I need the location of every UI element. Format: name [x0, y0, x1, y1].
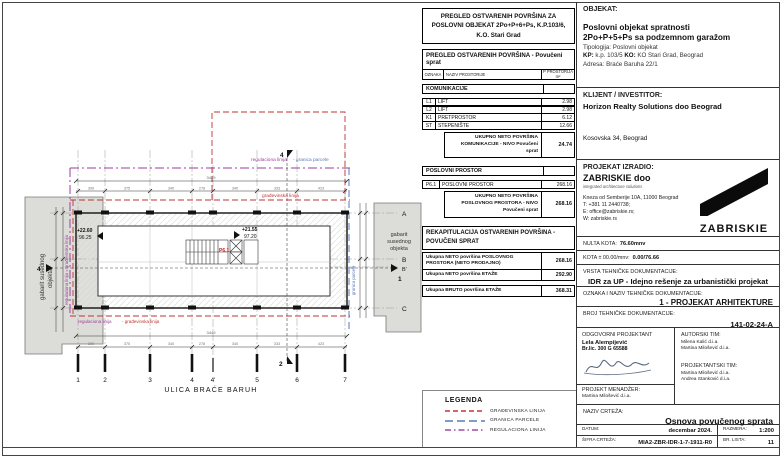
adresa-line: Adresa: Braće Baruha 22/1	[583, 61, 773, 68]
neighbor-right-label: susednog	[387, 239, 411, 245]
svg-text:340: 340	[232, 342, 238, 346]
rekap-row: Ukupna BRUTO površina ETAŽE 368.31	[422, 285, 575, 297]
rekapitulacija-header: REKAPITULACIJA OSTVARENIH POVRŠINA - POV…	[422, 226, 575, 250]
granica-parcele-swatch	[445, 419, 485, 423]
row-code: ST	[422, 121, 436, 130]
svg-text:423: 423	[318, 342, 324, 346]
timovi-column: AUTORSKI TIM: Milena Kalić d.i.a. Martin…	[675, 328, 779, 404]
lista-value: 11	[768, 440, 774, 446]
svg-text:333: 333	[274, 187, 280, 191]
sifra-lista-row: ŠIFRA CRTEŽA: MIA2-ZBR-IDR-1-7-1911-R0 B…	[577, 436, 779, 447]
razmera-value: 1:200	[759, 428, 774, 434]
left-vertical-line-label: regulaciona linija = građevinska linija	[64, 235, 69, 305]
rekap-label: Ukupna NETO površina ETAŽE	[422, 269, 542, 281]
datum-cell: DATUM: decembar 2024.	[577, 425, 717, 435]
svg-text:340: 340	[168, 187, 174, 191]
area-table-title: PREGLED OSTVARENIH POVRŠINA ZA POSLOVNI …	[422, 8, 575, 44]
objekat-title-line2: 2Po+P+5+Ps sa podzemnom garažom	[583, 33, 773, 42]
svg-text:A: A	[402, 211, 407, 218]
table-column-headers: OZNAKA NAZIV PROSTORIJE P PROSTORIJA m²	[422, 70, 575, 80]
gradjevinska-linija-label: građevinska linija	[262, 193, 299, 199]
svg-text:278: 278	[199, 342, 205, 346]
legend-item: GRAĐEVINSKA LINIJA	[445, 409, 576, 414]
objekat-section: OBJEKAT: Poslovni objekat spratnosti 2Po…	[577, 2, 779, 88]
row-name: POSLOVNI PROSTOR	[440, 180, 542, 189]
section-marker-bottom: 2	[279, 356, 293, 368]
neighbor-right-label: gabarit	[391, 232, 408, 238]
svg-text:4: 4	[190, 377, 194, 384]
neighbor-left-label: gabarit susednog	[40, 254, 46, 300]
section-value-cell	[544, 166, 575, 176]
svg-text:333: 333	[274, 342, 280, 346]
section-komunikacije: KOMUNIKACIJE	[422, 84, 575, 94]
drawing-sheet: gabarit susednog objekta gabarit susedno…	[0, 0, 782, 465]
axis-number-labels: 1 2 3 4 4' 5 6 7	[76, 377, 347, 384]
room-tag: P6.1	[219, 248, 230, 254]
regulaciona-linija-swatch	[445, 428, 485, 432]
menadzer-name: Martina Milošević d.i.a.	[582, 394, 669, 399]
oznaka-section: OZNAKA I NAZIV TEHNIČKE DOKUMENTACIJE: 1…	[577, 287, 779, 307]
title-block: OBJEKAT: Poslovni objekat spratnosti 2Po…	[576, 2, 779, 447]
kota-row: KOTA ± 00.00/mnv: 0.00/76.66	[577, 251, 779, 265]
svg-text:+21.55: +21.55	[242, 227, 258, 233]
legend-title: LEGENDA	[445, 397, 576, 404]
svg-text:5: 5	[255, 377, 259, 384]
svg-text:423: 423	[318, 187, 324, 191]
svg-text:97.20: 97.20	[244, 234, 257, 240]
vrsta-value: IDR za UP - Idejno rešenje za urbanistič…	[583, 277, 773, 286]
dim-total-top: 3449	[207, 175, 217, 180]
odgovorni-column: ODGOVORNI PROJEKTANT Lela Alempijević Br…	[577, 328, 675, 404]
dim-total-bottom: 3449	[207, 330, 217, 335]
klijent-name: Horizon Realty Solutions doo Beograd	[583, 102, 773, 111]
neighbor-building-right	[374, 203, 421, 332]
table-row: P6.1 POSLOVNI PROSTOR 268.16	[422, 180, 575, 189]
svg-text:2: 2	[279, 361, 283, 368]
svg-text:340: 340	[232, 187, 238, 191]
section-value-cell	[544, 84, 575, 94]
svg-text:C: C	[402, 306, 407, 313]
axis-ticks	[78, 354, 345, 372]
area-tables: PREGLED OSTVARENIH POVRŠINA ZA POSLOVNI …	[422, 8, 575, 297]
svg-text:340: 340	[168, 342, 174, 346]
svg-text:4: 4	[37, 266, 41, 273]
kp-ko-line: KP: k.p. 103/5 KO: KO Stari Grad, Beogra…	[583, 52, 773, 59]
signature	[582, 355, 654, 377]
section-label: POSLOVNI PROSTOR	[422, 166, 544, 176]
rekap-value: 368.31	[542, 285, 575, 297]
razmera-cell: RAZMERA: 1:200	[717, 425, 779, 435]
svg-text:+22.60: +22.60	[77, 228, 93, 234]
rekap-value: 268.16	[542, 252, 575, 270]
legend-label: REGULACIONA LINIJA	[490, 428, 546, 433]
neighbor-left-label: objekta	[48, 268, 54, 288]
svg-text:399: 399	[88, 187, 94, 191]
svg-text:4: 4	[280, 152, 284, 159]
svg-text:B': B'	[402, 267, 407, 273]
svg-text:278: 278	[199, 187, 205, 191]
broj-section: BROJ TEHNIČKE DOKUMENTACIJE: 141-02-24-A	[577, 307, 779, 328]
row-value: 268.16	[542, 180, 575, 189]
sifra-value: MIA2-ZBR-IDR-1-7-1911-R0	[638, 440, 712, 446]
rekap-row: Ukupna NETO površina POSLOVNOG PROSTORA …	[422, 252, 575, 270]
granica-parcele-label: - granica parcele	[293, 157, 329, 163]
street-label: ULICA BRAĆE BARUH	[164, 385, 257, 394]
klijent-section: KLIJENT / INVESTITOR: Horizon Realty Sol…	[577, 88, 779, 160]
row-code: P6.1	[422, 180, 440, 189]
legend-item: REGULACIONA LINIJA	[445, 428, 576, 433]
col-oznaka: OZNAKA	[423, 70, 444, 79]
right-vertical-line-label: granica parcele	[351, 265, 356, 295]
svg-text:4': 4'	[211, 377, 216, 384]
rekap-row: Ukupna NETO površina ETAŽE 292.90	[422, 269, 575, 281]
projektant-section: PROJEKAT IZRADIO: ZABRISKIE doo integrat…	[577, 160, 779, 237]
table-row: ST STEPENIŠTE 12.66	[422, 121, 575, 130]
team-section: ODGOVORNI PROJEKTANT Lela Alempijević Br…	[577, 328, 779, 405]
rekap-label: Ukupna NETO površina POSLOVNOG PROSTORA …	[422, 252, 542, 270]
legend-item: GRANICA PARCELE	[445, 418, 576, 423]
oznaka-value: 1 - PROJEKAT ARHITEKTURE	[583, 298, 773, 307]
nulta-kota-row: NULTA KOTA: 76.60mnv	[577, 237, 779, 251]
floor-plan-drawing: gabarit susednog objekta gabarit susedno…	[0, 0, 422, 460]
legend: LEGENDA GRAĐEVINSKA LINIJA GRANICA PARCE…	[422, 390, 576, 447]
menadzer-block: PROJEKT MENADŽER: Martina Milošević d.i.…	[577, 384, 674, 401]
datum-value: decembar 2024.	[668, 428, 712, 434]
bottom-gradjevinska-label: - građevinska linija	[122, 319, 160, 324]
svg-text:B: B	[402, 257, 406, 264]
objekat-title-line1: Poslovni objekat spratnosti	[583, 23, 773, 32]
neighbor-right-label: objekta	[390, 246, 409, 252]
summary-poslovni: UKUPNO NETO POVRŠINA POSLOVNOG PROSTORA …	[444, 191, 575, 218]
summary-value: 24.74	[542, 132, 575, 159]
svg-text:96.25: 96.25	[79, 235, 92, 241]
lista-cell: BR. LISTA: 11	[717, 436, 779, 447]
svg-text:375: 375	[124, 187, 130, 191]
svg-text:1: 1	[76, 377, 80, 384]
section-poslovni-prostor: POSLOVNI PROSTOR	[422, 166, 575, 176]
summary-label: UKUPNO NETO POVRŠINA POSLOVNOG PROSTORA …	[444, 191, 542, 218]
row-name: STEPENIŠTE	[436, 121, 542, 130]
vrsta-section: VRSTA TEHNIČKE DOKUMENTACIJE: IDR za UP …	[577, 265, 779, 287]
col-naziv: NAZIV PROSTORIJE	[444, 72, 541, 77]
row-value: 12.66	[542, 121, 575, 130]
svg-text:3: 3	[148, 377, 152, 384]
summary-komunikacije: UKUPNO NETO POVRŠINA KOMUNIKACIJE - NIVO…	[444, 132, 575, 159]
logo-text: ZABRISKIE	[695, 223, 773, 235]
gradjevinska-linija-swatch	[445, 409, 485, 413]
license-number: Br.lic. 300 G 65588	[582, 346, 669, 352]
svg-text:7: 7	[343, 377, 347, 384]
datum-razmera-row: DATUM: decembar 2024. RAZMERA: 1:200	[577, 425, 779, 436]
sifra-cell: ŠIFRA CRTEŽA: MIA2-ZBR-IDR-1-7-1911-R0	[577, 436, 717, 447]
svg-text:399: 399	[88, 342, 94, 346]
section-label: KOMUNIKACIJE	[422, 84, 544, 94]
svg-text:1: 1	[398, 276, 402, 283]
klijent-label: KLIJENT / INVESTITOR:	[583, 92, 773, 99]
rekap-value: 292.90	[542, 269, 575, 281]
rekap-label: Ukupna BRUTO površina ETAŽE	[422, 285, 542, 297]
svg-text:375: 375	[124, 342, 130, 346]
klijent-address: Kosovska 34, Beograd	[583, 135, 773, 142]
svg-text:2: 2	[103, 377, 107, 384]
objekat-label: OBJEKAT:	[583, 6, 773, 13]
zabriskie-logo-icon	[698, 166, 770, 216]
firm-logo: ZABRISKIE	[695, 166, 773, 235]
legend-label: GRANICA PARCELE	[490, 418, 539, 423]
tipologija-line: Tipologija: Poslovni objekat	[583, 44, 773, 51]
summary-label: UKUPNO NETO POVRŠINA KOMUNIKACIJE - NIVO…	[444, 132, 542, 159]
naziv-section: NAZIV CRTEŽA: Osnova povučenog sprata	[577, 405, 779, 425]
legend-label: GRAĐEVINSKA LINIJA	[490, 409, 546, 414]
svg-text:6: 6	[295, 377, 299, 384]
bottom-divider	[2, 447, 779, 448]
summary-value: 268.16	[542, 191, 575, 218]
bottom-regulaciona-label: regulaciona linija	[78, 319, 112, 324]
lift-shafts	[230, 240, 258, 264]
area-table-subtitle: PREGLED OSTVARENIH POVRŠINA - Povučeni s…	[422, 49, 575, 70]
col-povrsina: P PROSTORIJA m²	[541, 70, 574, 79]
